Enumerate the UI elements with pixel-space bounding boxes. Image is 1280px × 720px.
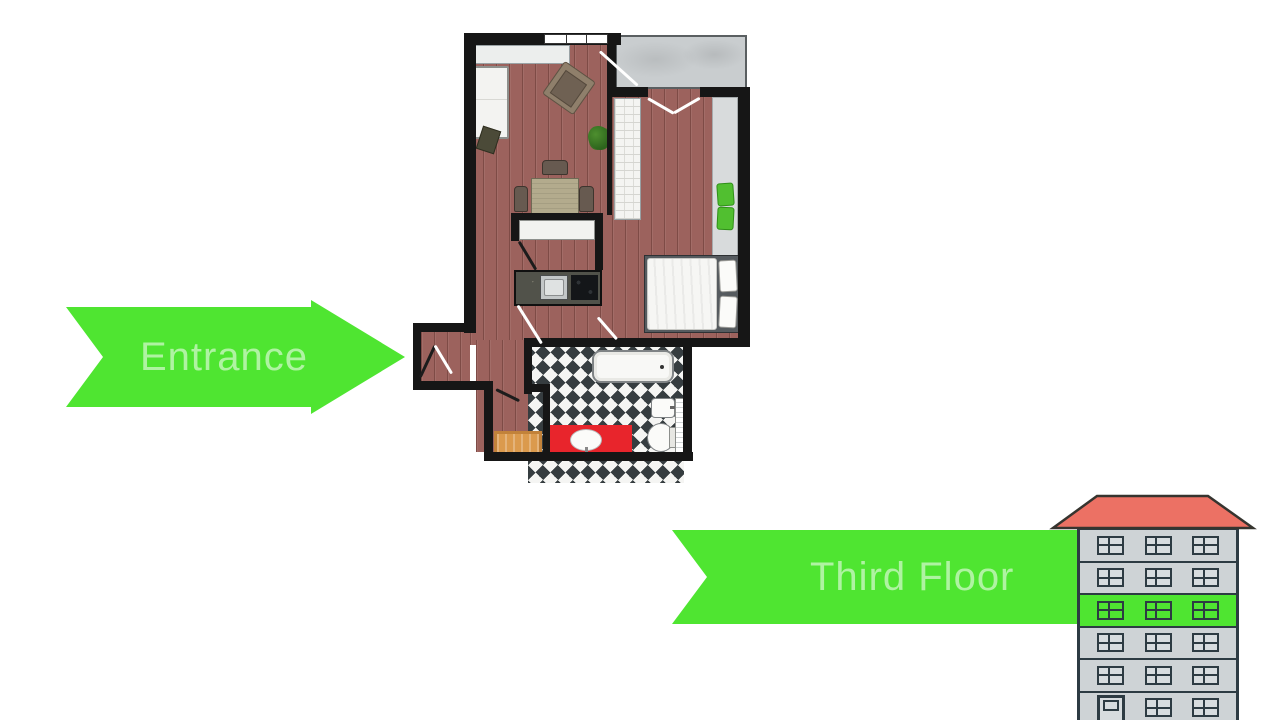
bathroom-sink: [651, 398, 675, 418]
kitchen-cabinet: [519, 220, 595, 240]
building-window: [1097, 536, 1124, 555]
building-floor-1: [1080, 530, 1236, 563]
kitchen-counter: [514, 270, 602, 306]
building-window: [1145, 698, 1172, 717]
bathtub: [592, 350, 674, 383]
building-window: [1145, 536, 1172, 555]
building-window: [1192, 666, 1219, 685]
bed-pillow-top: [718, 260, 738, 293]
building-window: [1145, 666, 1172, 685]
wall: [511, 213, 519, 241]
wall: [524, 338, 750, 347]
building-window: [1192, 698, 1219, 717]
wall: [413, 323, 421, 390]
wall: [700, 87, 748, 97]
entrance-label: Entrance: [140, 335, 308, 380]
building-window: [1192, 568, 1219, 587]
building-window: [1192, 633, 1219, 652]
floor-plan: [410, 30, 755, 465]
building-floor-4: [1080, 628, 1236, 661]
vanity-sink: [570, 429, 602, 451]
dining-table: [531, 178, 579, 215]
wall: [413, 381, 493, 390]
wall: [612, 87, 648, 97]
building-window: [1192, 536, 1219, 555]
building-window: [1192, 601, 1219, 620]
wall: [413, 323, 470, 332]
wall: [607, 95, 612, 215]
wall: [464, 33, 476, 333]
apartment-infographic: Entrance Third Floor: [0, 0, 1280, 720]
wall: [595, 213, 603, 270]
building-floor-6: [1080, 693, 1236, 720]
wall: [543, 388, 550, 456]
wall: [484, 381, 493, 460]
bathroom-vanity: [548, 425, 632, 454]
building-roof: [1041, 489, 1261, 531]
green-cushion-top: [716, 182, 735, 206]
wall: [511, 213, 603, 220]
toilet: [647, 423, 675, 452]
bed-pillow-bottom: [718, 296, 738, 329]
dining-chair-north: [542, 160, 568, 175]
bed: [644, 255, 740, 333]
stove: [571, 275, 598, 300]
building-window: [1097, 666, 1124, 685]
wall: [524, 384, 550, 392]
building-floor-3: [1080, 595, 1236, 628]
third-floor-banner: Third Floor: [672, 530, 1078, 624]
dining-chair-west: [514, 186, 528, 212]
building-floor-2: [1080, 563, 1236, 596]
building-window: [1097, 601, 1124, 620]
building-floor-5: [1080, 660, 1236, 693]
building-window: [1097, 568, 1124, 587]
sofa: [473, 66, 509, 139]
entrance-arrow-banner: Entrance: [63, 299, 405, 415]
kitchen-sink: [540, 275, 568, 300]
building-window: [1097, 633, 1124, 652]
building-window: [1145, 633, 1172, 652]
dining-chair-east: [579, 186, 594, 212]
wall: [484, 452, 693, 461]
sideboard: [472, 45, 570, 64]
building-window: [1145, 568, 1172, 587]
wardrobe-strip: [712, 97, 738, 257]
building: [1077, 527, 1239, 720]
wall: [683, 345, 692, 461]
building-window: [1145, 601, 1172, 620]
building-door: [1097, 695, 1125, 720]
wall: [738, 87, 750, 347]
wardrobe-closet: [614, 98, 641, 220]
green-cushion-bottom: [716, 207, 734, 231]
bed-duvet: [647, 258, 717, 330]
window: [544, 34, 608, 44]
third-floor-label: Third Floor: [810, 555, 1014, 600]
